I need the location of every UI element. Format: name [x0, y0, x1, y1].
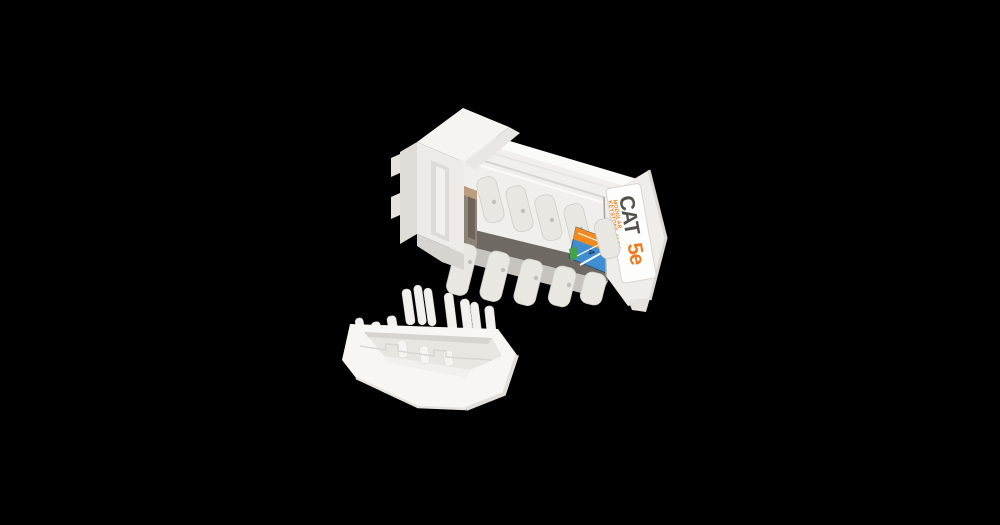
- housing-mount-tab-top: [391, 154, 400, 177]
- housing-mount-tab-bottom: [391, 193, 400, 219]
- label-text-5e: 5e: [622, 241, 648, 266]
- tooth-dimple: [567, 283, 571, 287]
- tooth-dimple: [492, 200, 496, 204]
- tooth-dimple: [550, 218, 554, 222]
- tooth-dimple: [534, 276, 538, 280]
- tooth-dimple: [468, 260, 472, 264]
- tooth-dimple: [501, 268, 505, 272]
- product-photo: 4 CAT 5e MODULAR KEYSTONE JACK: [0, 0, 1000, 525]
- housing-slot-shadow: [468, 196, 475, 240]
- tooth-dimple: [521, 209, 525, 213]
- housing-latch-bar: [436, 166, 445, 236]
- product-photo-canvas: 4 CAT 5e MODULAR KEYSTONE JACK: [0, 0, 1000, 525]
- housing-left-face: [400, 142, 417, 244]
